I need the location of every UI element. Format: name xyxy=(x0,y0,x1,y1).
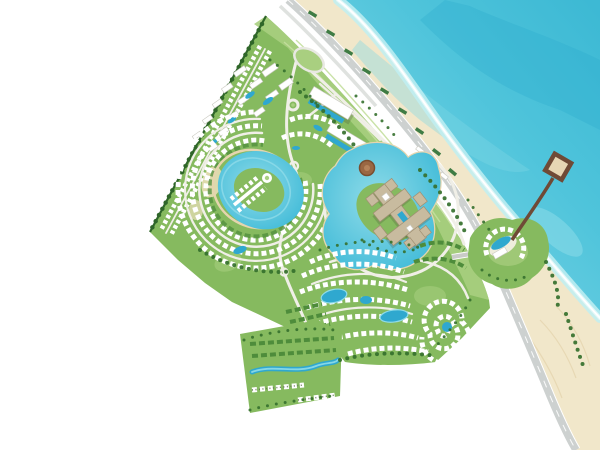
central-hotel-island xyxy=(323,143,446,269)
island-roundabout-center xyxy=(265,176,269,180)
roundabout-center xyxy=(291,103,295,107)
pond xyxy=(360,296,372,304)
masterplan-svg xyxy=(0,0,600,450)
plaza-center xyxy=(364,165,370,171)
lawn-patch xyxy=(414,286,446,306)
swimming-pool xyxy=(292,146,300,150)
